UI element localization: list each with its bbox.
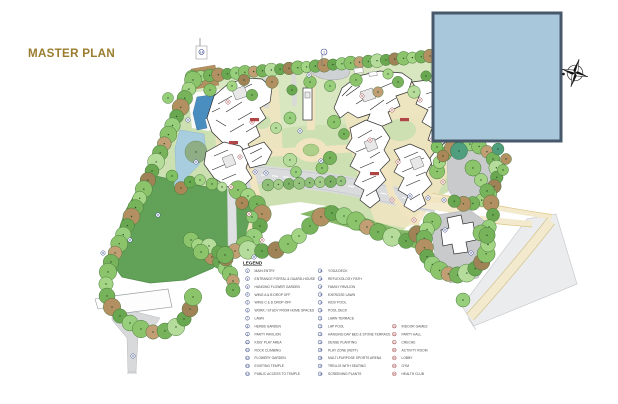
svg-text:ROCK CLIMBING: ROCK CLIMBING bbox=[255, 348, 282, 352]
svg-text:PARTY PAVILION: PARTY PAVILION bbox=[255, 332, 282, 336]
svg-text:FLOWERY GARDEN: FLOWERY GARDEN bbox=[255, 356, 287, 360]
svg-text:17: 17 bbox=[320, 285, 323, 289]
svg-text:PARTY HALL: PARTY HALL bbox=[402, 332, 422, 336]
svg-text:TRELLIS WITH SEATING: TRELLIS WITH SEATING bbox=[328, 364, 366, 368]
svg-text:16: 16 bbox=[320, 277, 323, 281]
svg-text:EXISTING TEMPLE: EXISTING TEMPLE bbox=[255, 364, 285, 368]
svg-text:WING A & B DROP OFF: WING A & B DROP OFF bbox=[255, 293, 291, 297]
svg-text:ACTIVITY ROOM: ACTIVITY ROOM bbox=[402, 348, 428, 352]
svg-text:REFLEXOLOGY PATH: REFLEXOLOGY PATH bbox=[328, 277, 362, 281]
svg-text:27: 27 bbox=[320, 364, 323, 368]
svg-text:HANGING FLOWER GARDEN: HANGING FLOWER GARDEN bbox=[255, 285, 301, 289]
svg-text:25: 25 bbox=[320, 348, 323, 352]
svg-text:20: 20 bbox=[320, 309, 323, 313]
svg-text:EXERCISE LAWN: EXERCISE LAWN bbox=[328, 293, 356, 297]
svg-text:LOBBY: LOBBY bbox=[402, 356, 414, 360]
svg-text:YOGA DECK: YOGA DECK bbox=[328, 269, 348, 273]
svg-text:DENSE PLANTING: DENSE PLANTING bbox=[328, 340, 357, 344]
svg-text:MAIN ENTRY: MAIN ENTRY bbox=[255, 269, 276, 273]
svg-text:PUBLIC ACCESS TO TEMPLE: PUBLIC ACCESS TO TEMPLE bbox=[255, 372, 301, 376]
svg-text:INDOOR GAMES: INDOOR GAMES bbox=[402, 325, 429, 329]
svg-text:POOL DECK: POOL DECK bbox=[328, 309, 348, 313]
svg-text:HEALTH CLUB: HEALTH CLUB bbox=[402, 372, 425, 376]
svg-text:LAP POOL: LAP POOL bbox=[328, 325, 344, 329]
svg-text:WING C & D DROP-OFF: WING C & D DROP-OFF bbox=[255, 301, 292, 305]
svg-text:PLAY ZONE (KBTF): PLAY ZONE (KBTF) bbox=[328, 348, 358, 352]
svg-text:23: 23 bbox=[320, 332, 323, 336]
svg-text:ENTRANCE PORTAL & GUARD-HOUSE: ENTRANCE PORTAL & GUARD-HOUSE bbox=[255, 277, 316, 281]
svg-text:28: 28 bbox=[320, 372, 323, 376]
svg-text:21: 21 bbox=[320, 317, 323, 321]
svg-text:18: 18 bbox=[320, 293, 323, 297]
svg-text:LAWN: LAWN bbox=[255, 317, 265, 321]
svg-text:LEGEND: LEGEND bbox=[243, 261, 263, 266]
svg-text:26: 26 bbox=[320, 356, 323, 360]
svg-text:MULTI-PURPOSE SPORTS ARENA: MULTI-PURPOSE SPORTS ARENA bbox=[328, 356, 382, 360]
svg-text:HANGING DAY BED & STONE TERRAC: HANGING DAY BED & STONE TERRACE bbox=[328, 332, 391, 336]
svg-text:GYM: GYM bbox=[402, 364, 410, 368]
svg-text:KIDS' PLAY AREA: KIDS' PLAY AREA bbox=[255, 340, 283, 344]
svg-text:1: 1 bbox=[323, 51, 325, 55]
svg-text:CRECHE: CRECHE bbox=[402, 340, 417, 344]
svg-text:22: 22 bbox=[320, 324, 323, 328]
svg-text:MASTER PLAN: MASTER PLAN bbox=[28, 47, 115, 60]
svg-text:WORK / STUDY FROM HOME SPACES: WORK / STUDY FROM HOME SPACES bbox=[255, 309, 315, 313]
svg-text:HERBS GARDEN: HERBS GARDEN bbox=[255, 325, 282, 329]
svg-text:19: 19 bbox=[320, 301, 323, 305]
svg-text:LAWN TERRACE: LAWN TERRACE bbox=[328, 317, 355, 321]
svg-text:15: 15 bbox=[320, 269, 323, 273]
svg-text:KIDS' POOL: KIDS' POOL bbox=[328, 301, 347, 305]
svg-text:SCREENING PLANTS: SCREENING PLANTS bbox=[328, 372, 362, 376]
svg-text:FAMILY PAVILION: FAMILY PAVILION bbox=[328, 285, 356, 289]
svg-text:14: 14 bbox=[200, 51, 204, 55]
svg-text:24: 24 bbox=[320, 340, 323, 344]
